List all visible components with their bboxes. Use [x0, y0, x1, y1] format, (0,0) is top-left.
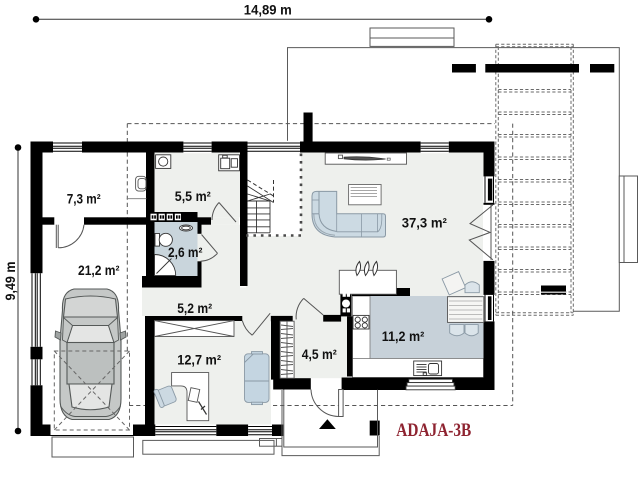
svg-text:9,49 m: 9,49 m	[3, 262, 18, 301]
svg-text:5,2 m²: 5,2 m²	[177, 301, 212, 316]
svg-text:11,2 m²: 11,2 m²	[382, 329, 425, 344]
svg-text:5,5 m²: 5,5 m²	[175, 189, 211, 204]
svg-text:12,7 m²: 12,7 m²	[177, 353, 221, 368]
svg-text:21,2 m²: 21,2 m²	[78, 263, 120, 278]
svg-text:4,5 m²: 4,5 m²	[302, 347, 337, 362]
svg-text:ADAJA-3B: ADAJA-3B	[396, 420, 471, 441]
svg-text:2,6 m²: 2,6 m²	[168, 245, 203, 260]
svg-text:37,3 m²: 37,3 m²	[402, 216, 448, 231]
svg-text:7,3 m²: 7,3 m²	[67, 192, 101, 207]
svg-text:14,89 m: 14,89 m	[244, 3, 292, 18]
